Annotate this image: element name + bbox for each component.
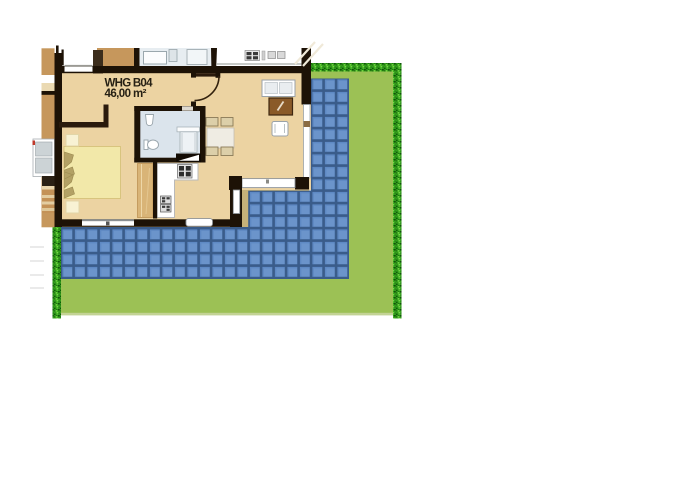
svg-text:46,00 m²: 46,00 m² <box>105 88 147 100</box>
